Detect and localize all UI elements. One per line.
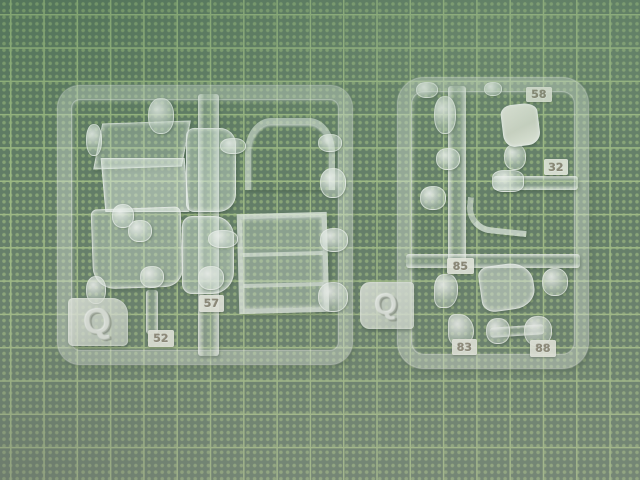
part-number-tag-32: 32 (544, 159, 568, 175)
clear-part-windshield (237, 212, 330, 314)
left-sprue-letter: Q (81, 299, 115, 344)
sprue-stub (320, 168, 346, 198)
sprue-stub (208, 230, 238, 248)
sprue-stub (416, 82, 438, 98)
tag-52-riser (146, 290, 158, 334)
windshield-divider-lower (244, 282, 324, 288)
sprue-stub (220, 138, 246, 154)
windshield-divider-upper (243, 251, 323, 257)
sprue-stub (492, 170, 524, 192)
left-sprue: Q 52 57 (58, 86, 352, 364)
sprue-stub (434, 274, 458, 308)
sprue-stub (504, 144, 526, 170)
sprue-stub (434, 96, 456, 134)
sprue-stub (318, 282, 348, 312)
right-sprue: 58 32 85 83 88 Q (398, 78, 588, 368)
part-number-tag-83: 83 (452, 339, 477, 355)
part-number-tag-52: 52 (148, 330, 174, 347)
sprue-stub (320, 228, 348, 252)
white-windscreen-part (500, 102, 542, 148)
sprue-stub (484, 82, 502, 96)
part-number-tag-58: 58 (526, 87, 552, 102)
part-number-tag-88: 88 (530, 340, 556, 357)
sprue-stub (140, 266, 164, 288)
clear-part-vision-block-front-face (101, 158, 190, 212)
sprue-stub (436, 148, 460, 170)
sprue-stub (486, 318, 510, 344)
sprue-stub (198, 266, 224, 290)
part-number-tag-85: 85 (447, 258, 474, 274)
sprue-stub (542, 268, 568, 296)
sprue-stub (420, 186, 446, 210)
sprue-stub (128, 220, 152, 242)
clear-part-lower-block-body (91, 206, 184, 289)
sprue-stub (148, 98, 174, 134)
right-sprue-letter: Q (374, 288, 399, 323)
sprue-stub (318, 134, 342, 152)
photo-clear-sprues-on-cutting-mat: Q 52 57 58 32 (0, 0, 640, 480)
sprue-stub (86, 124, 102, 156)
left-sprue-letter-tab: Q (68, 298, 128, 346)
right-sprue-letter-tab: Q (360, 282, 414, 329)
part-number-tag-57: 57 (199, 295, 224, 312)
